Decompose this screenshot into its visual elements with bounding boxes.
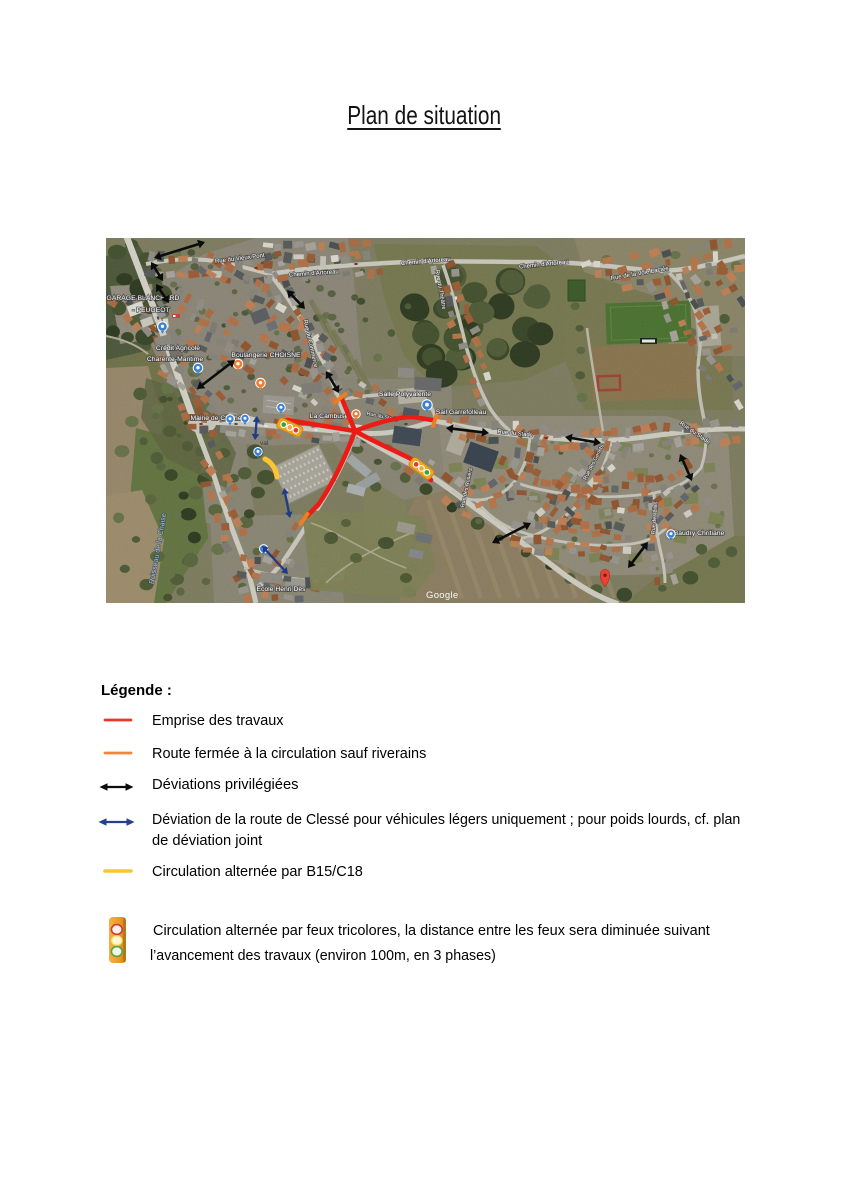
svg-text:Google: Google (426, 590, 458, 601)
svg-text:École Henri Dès: École Henri Dès (256, 584, 306, 593)
svg-text:Sail Garrefolleau: Sail Garrefolleau (436, 409, 487, 416)
svg-text:Boulangerie CHOISNE: Boulangerie CHOISNE (231, 352, 301, 359)
svg-text:val: val (260, 440, 269, 447)
svg-text:Crédit Agricole: Crédit Agricole (156, 345, 200, 352)
svg-text:Baudry Chritiane: Baudry Chritiane (674, 530, 725, 537)
svg-text:La Cambuse: La Cambuse (310, 413, 349, 420)
svg-text:- PEUGEOT: - PEUGEOT (132, 307, 169, 314)
svg-text:Charente-Maritime: Charente-Maritime (147, 356, 203, 363)
svg-text:Salle Polyvalente: Salle Polyvalente (379, 391, 431, 398)
